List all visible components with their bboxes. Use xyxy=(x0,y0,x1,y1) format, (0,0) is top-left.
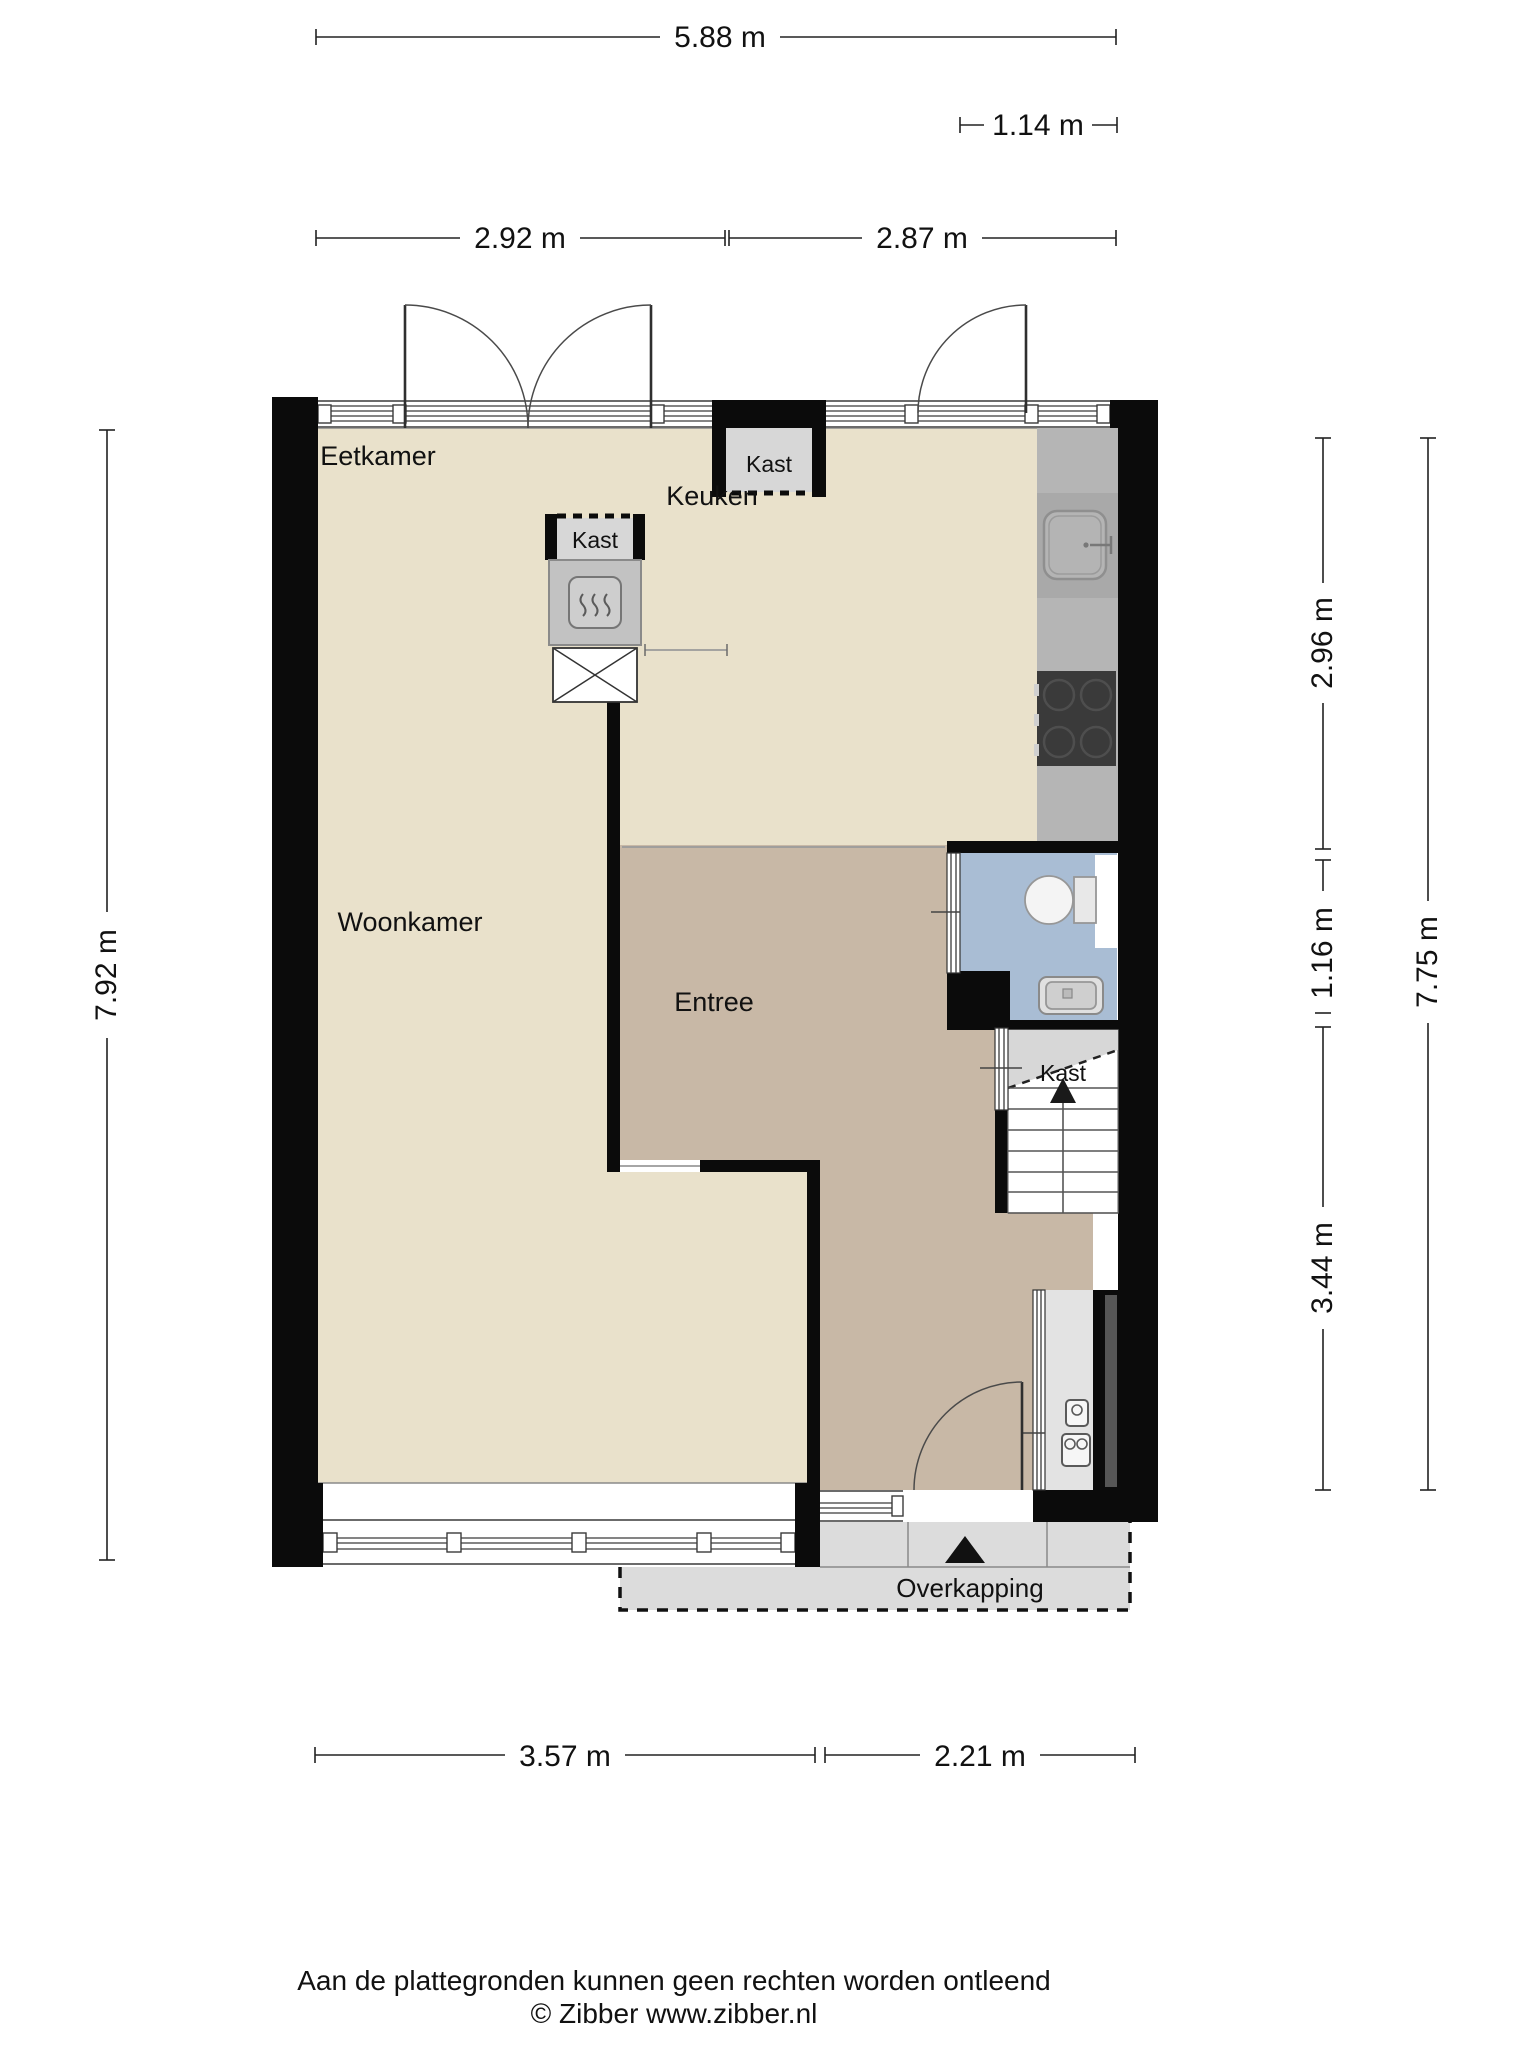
dim-right-lower: 3.44 m xyxy=(1306,1222,1339,1314)
wall-living-hall-lower xyxy=(807,1172,820,1490)
closet-side-wall xyxy=(633,514,645,560)
kitchen-door-swing-arc xyxy=(918,305,1026,413)
stairs-door xyxy=(995,1028,1008,1110)
canopy-label: Overkapping xyxy=(896,1573,1043,1603)
floor-living-lower xyxy=(318,1172,807,1483)
wall-living-hall-jog xyxy=(700,1160,820,1172)
cooktop-control-icon xyxy=(1034,684,1039,696)
window-mullion xyxy=(651,405,664,423)
mid-column: Kast xyxy=(549,516,641,702)
wall-bottom-step xyxy=(795,1483,820,1567)
toilet-niche xyxy=(1095,855,1117,948)
toilet-cistern xyxy=(1074,877,1096,923)
bottom-window-living xyxy=(323,1520,810,1564)
closet-label: Kast xyxy=(1040,1060,1087,1086)
closet-side-wall xyxy=(545,514,557,560)
room-label-kitchen: Keuken xyxy=(666,481,758,511)
window-mullion xyxy=(781,1533,795,1552)
dim-bottom-left: 3.57 m xyxy=(519,1740,611,1773)
wall-top-closet xyxy=(712,400,826,428)
window-mullion xyxy=(318,405,331,423)
window-mullion xyxy=(323,1533,337,1552)
utility-meter-icon xyxy=(1066,1400,1088,1426)
cooktop-control-icon xyxy=(1034,714,1039,726)
wall-living-hall-upper xyxy=(607,700,620,1160)
dim-top-right: 2.87 m xyxy=(876,222,968,255)
counter xyxy=(1037,428,1118,845)
window-mullion xyxy=(447,1533,461,1552)
wall-bottom-left-pillar xyxy=(272,1483,323,1567)
oven-icon xyxy=(569,577,621,628)
floorplan-drawing: Kast Kast xyxy=(0,0,1536,2048)
wall-toilet-bottom xyxy=(1010,1020,1118,1030)
cooktop-control-icon xyxy=(1034,744,1039,756)
floor-hall-mid xyxy=(620,1030,995,1160)
wall-right xyxy=(1118,400,1158,1522)
wall-jog-corner xyxy=(607,1160,620,1172)
window-mullion xyxy=(905,405,918,423)
dim-top-inset: 1.14 m xyxy=(992,109,1084,142)
closet-label: Kast xyxy=(572,527,619,553)
washbasin-drain-icon xyxy=(1063,989,1072,998)
closet-side-wall xyxy=(812,428,826,497)
floors xyxy=(318,428,1117,1490)
floorplan-page: Kast Kast xyxy=(0,0,1536,2048)
footer-copyright: © Zibber www.zibber.nl xyxy=(531,1998,818,2029)
room-label-hall: Entree xyxy=(674,987,754,1017)
toilet-bowl xyxy=(1025,876,1073,924)
dim-right-total: 7.75 m xyxy=(1411,916,1444,1008)
dim-bottom-right: 2.21 m xyxy=(934,1740,1026,1773)
room-label-dining: Eetkamer xyxy=(320,441,436,471)
wall-toilet-top xyxy=(947,841,1118,853)
toilet-door xyxy=(947,853,960,973)
dim-left-total: 7.92 m xyxy=(90,929,123,1021)
meter-cupboard-panel xyxy=(1105,1295,1117,1487)
bottom-window-hall xyxy=(820,1491,903,1521)
window-mullion xyxy=(1097,405,1110,423)
dim-top-total: 5.88 m xyxy=(674,21,766,54)
dim-right-middle: 1.16 m xyxy=(1306,907,1339,999)
utility-meter-icon xyxy=(1062,1434,1090,1466)
meter-cupboard-door xyxy=(1033,1290,1045,1490)
floor-hall-upper xyxy=(620,845,947,1030)
closet-label: Kast xyxy=(746,451,793,477)
floor-hall-under-stairs xyxy=(1010,1213,1093,1293)
dim-right-upper: 2.96 m xyxy=(1306,597,1339,689)
wall-top-right-corner xyxy=(1110,400,1158,428)
footer: Aan de plattegronden kunnen geen rechten… xyxy=(297,1965,1050,2029)
wall-left xyxy=(272,397,318,1567)
dim-top-left: 2.92 m xyxy=(474,222,566,255)
room-label-living: Woonkamer xyxy=(337,907,482,937)
window-mullion xyxy=(572,1533,586,1552)
wall-toilet-corner xyxy=(947,971,1010,1030)
faucet-spout-icon xyxy=(1083,542,1088,547)
wall-stairs-left xyxy=(995,1110,1008,1213)
window-mullion xyxy=(892,1496,903,1516)
footer-disclaimer: Aan de plattegronden kunnen geen rechten… xyxy=(297,1965,1050,1996)
floor-living-upper xyxy=(318,845,607,1172)
kitchen-counter xyxy=(1034,428,1118,845)
window-mullion xyxy=(697,1533,711,1552)
